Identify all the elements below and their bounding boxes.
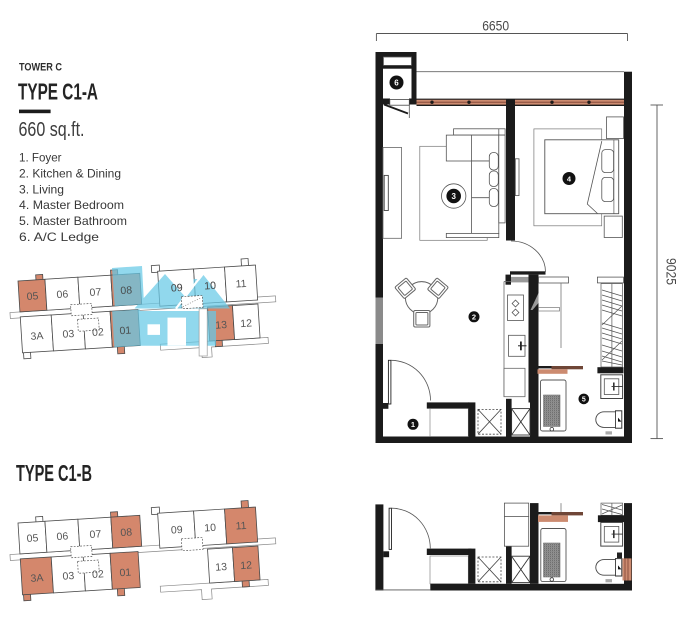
svg-text:10: 10 [204, 522, 217, 535]
svg-text:4. Master Bedroom: 4. Master Bedroom [19, 198, 124, 212]
svg-text:07: 07 [89, 528, 102, 541]
svg-text:05: 05 [26, 532, 39, 545]
svg-text:03: 03 [62, 570, 75, 583]
svg-text:6: 6 [394, 78, 399, 87]
svg-text:2: 2 [472, 313, 476, 322]
svg-text:01: 01 [119, 324, 132, 337]
svg-text:01: 01 [119, 566, 132, 579]
svg-text:11: 11 [235, 278, 247, 291]
svg-text:TYPE C1-A: TYPE C1-A [18, 79, 98, 105]
svg-text:12: 12 [240, 317, 253, 330]
svg-text:13: 13 [215, 319, 228, 332]
svg-text:13: 13 [215, 561, 228, 574]
svg-text:08: 08 [120, 284, 133, 297]
svg-text:02: 02 [92, 568, 105, 581]
svg-text:02: 02 [92, 326, 105, 339]
svg-text:6650: 6650 [482, 19, 509, 34]
svg-text:11: 11 [235, 520, 247, 533]
svg-text:06: 06 [56, 530, 69, 543]
svg-text:3A: 3A [30, 572, 44, 585]
svg-text:06: 06 [56, 288, 69, 301]
svg-text:1: 1 [411, 420, 415, 429]
svg-text:10: 10 [204, 280, 217, 293]
svg-text:09: 09 [171, 524, 184, 537]
svg-text:TYPE C1-B: TYPE C1-B [16, 460, 92, 486]
svg-text:3A: 3A [30, 330, 44, 343]
svg-text:2. Kitchen & Dining: 2. Kitchen & Dining [19, 166, 121, 180]
svg-text:05: 05 [26, 290, 39, 303]
svg-text:660 sq.ft.: 660 sq.ft. [19, 119, 85, 141]
svg-text:12: 12 [240, 559, 253, 572]
svg-text:6. A/C Ledge: 6. A/C Ledge [19, 230, 99, 244]
svg-text:03: 03 [62, 328, 75, 341]
svg-text:3: 3 [451, 192, 456, 201]
svg-text:5: 5 [582, 397, 586, 404]
svg-text:07: 07 [89, 286, 102, 299]
svg-text:09: 09 [171, 282, 184, 295]
svg-text:5. Master Bathroom: 5. Master Bathroom [19, 214, 127, 228]
svg-text:TOWER C: TOWER C [19, 62, 62, 74]
svg-text:1. Foyer: 1. Foyer [19, 151, 62, 165]
svg-text:9025: 9025 [664, 258, 679, 285]
svg-text:3. Living: 3. Living [19, 182, 64, 196]
svg-text:08: 08 [120, 526, 133, 539]
